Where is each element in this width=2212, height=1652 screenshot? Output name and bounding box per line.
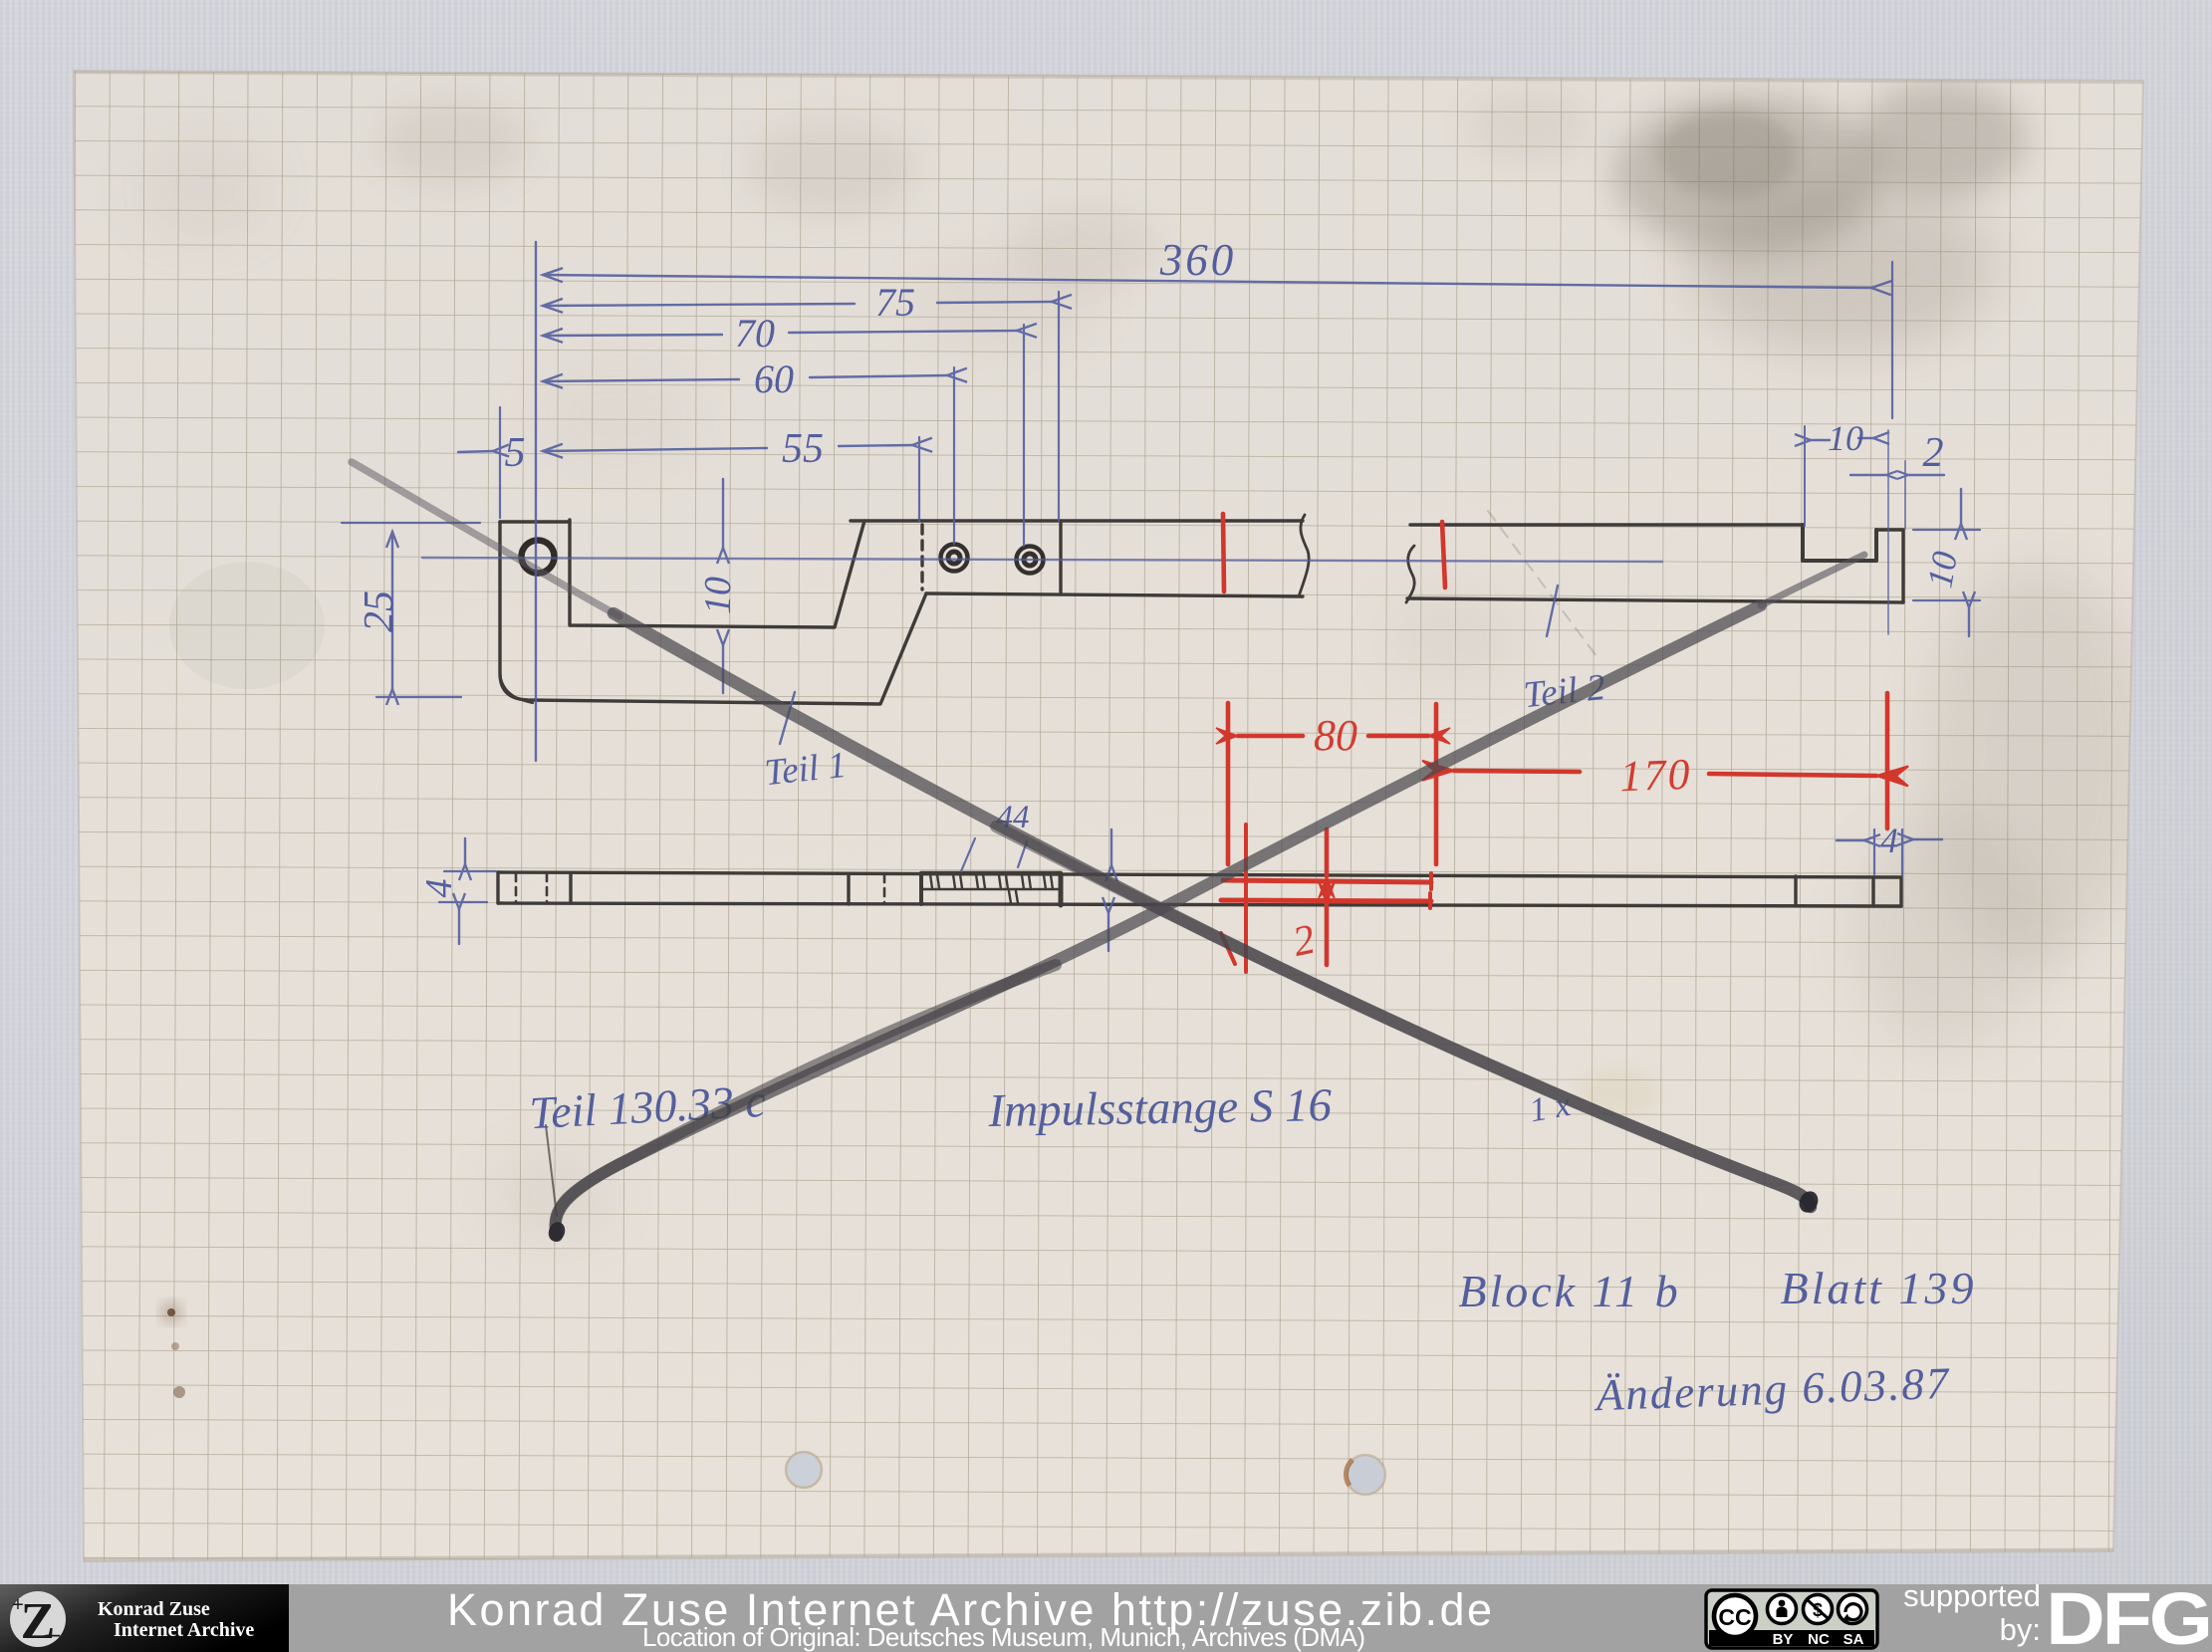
svg-text:Block 11 b: Block 11 b bbox=[1458, 1266, 1680, 1316]
svg-text:BY: BY bbox=[1773, 1631, 1794, 1648]
svg-text:Location of Original: Deutsche: Location of Original: Deutsches Museum, … bbox=[642, 1622, 1365, 1652]
svg-text:70: 70 bbox=[735, 311, 775, 355]
svg-text:60: 60 bbox=[754, 356, 794, 401]
svg-text:CC: CC bbox=[1718, 1604, 1751, 1630]
svg-text:Internet Archive: Internet Archive bbox=[114, 1619, 254, 1641]
svg-text:5: 5 bbox=[505, 430, 526, 476]
svg-text:2: 2 bbox=[1923, 430, 1944, 476]
svg-text:10: 10 bbox=[1919, 549, 1965, 590]
svg-text:supported: supported bbox=[1903, 1578, 2041, 1613]
svg-text:4: 4 bbox=[418, 879, 460, 898]
svg-text:25: 25 bbox=[357, 590, 402, 632]
svg-text:DFG: DFG bbox=[2046, 1577, 2210, 1652]
svg-text:Teil 1: Teil 1 bbox=[763, 745, 849, 794]
svg-text:360: 360 bbox=[1159, 235, 1237, 285]
svg-text:75: 75 bbox=[875, 280, 915, 325]
svg-text:NC: NC bbox=[1808, 1631, 1830, 1648]
svg-text:Impulsstange S 16: Impulsstange S 16 bbox=[987, 1079, 1333, 1137]
svg-text:SA: SA bbox=[1843, 1631, 1864, 1648]
svg-text:80: 80 bbox=[1314, 711, 1357, 760]
svg-text:10: 10 bbox=[1828, 418, 1863, 458]
svg-text:170: 170 bbox=[1619, 750, 1693, 801]
svg-text:+: + bbox=[12, 1594, 24, 1616]
svg-text:Blatt 139: Blatt 139 bbox=[1781, 1263, 1977, 1313]
svg-text:by:: by: bbox=[2000, 1612, 2041, 1647]
svg-text:Konrad Zuse: Konrad Zuse bbox=[98, 1598, 210, 1620]
svg-text:55: 55 bbox=[782, 426, 824, 472]
svg-text:–: – bbox=[46, 1618, 61, 1648]
svg-text:10: 10 bbox=[697, 577, 739, 614]
